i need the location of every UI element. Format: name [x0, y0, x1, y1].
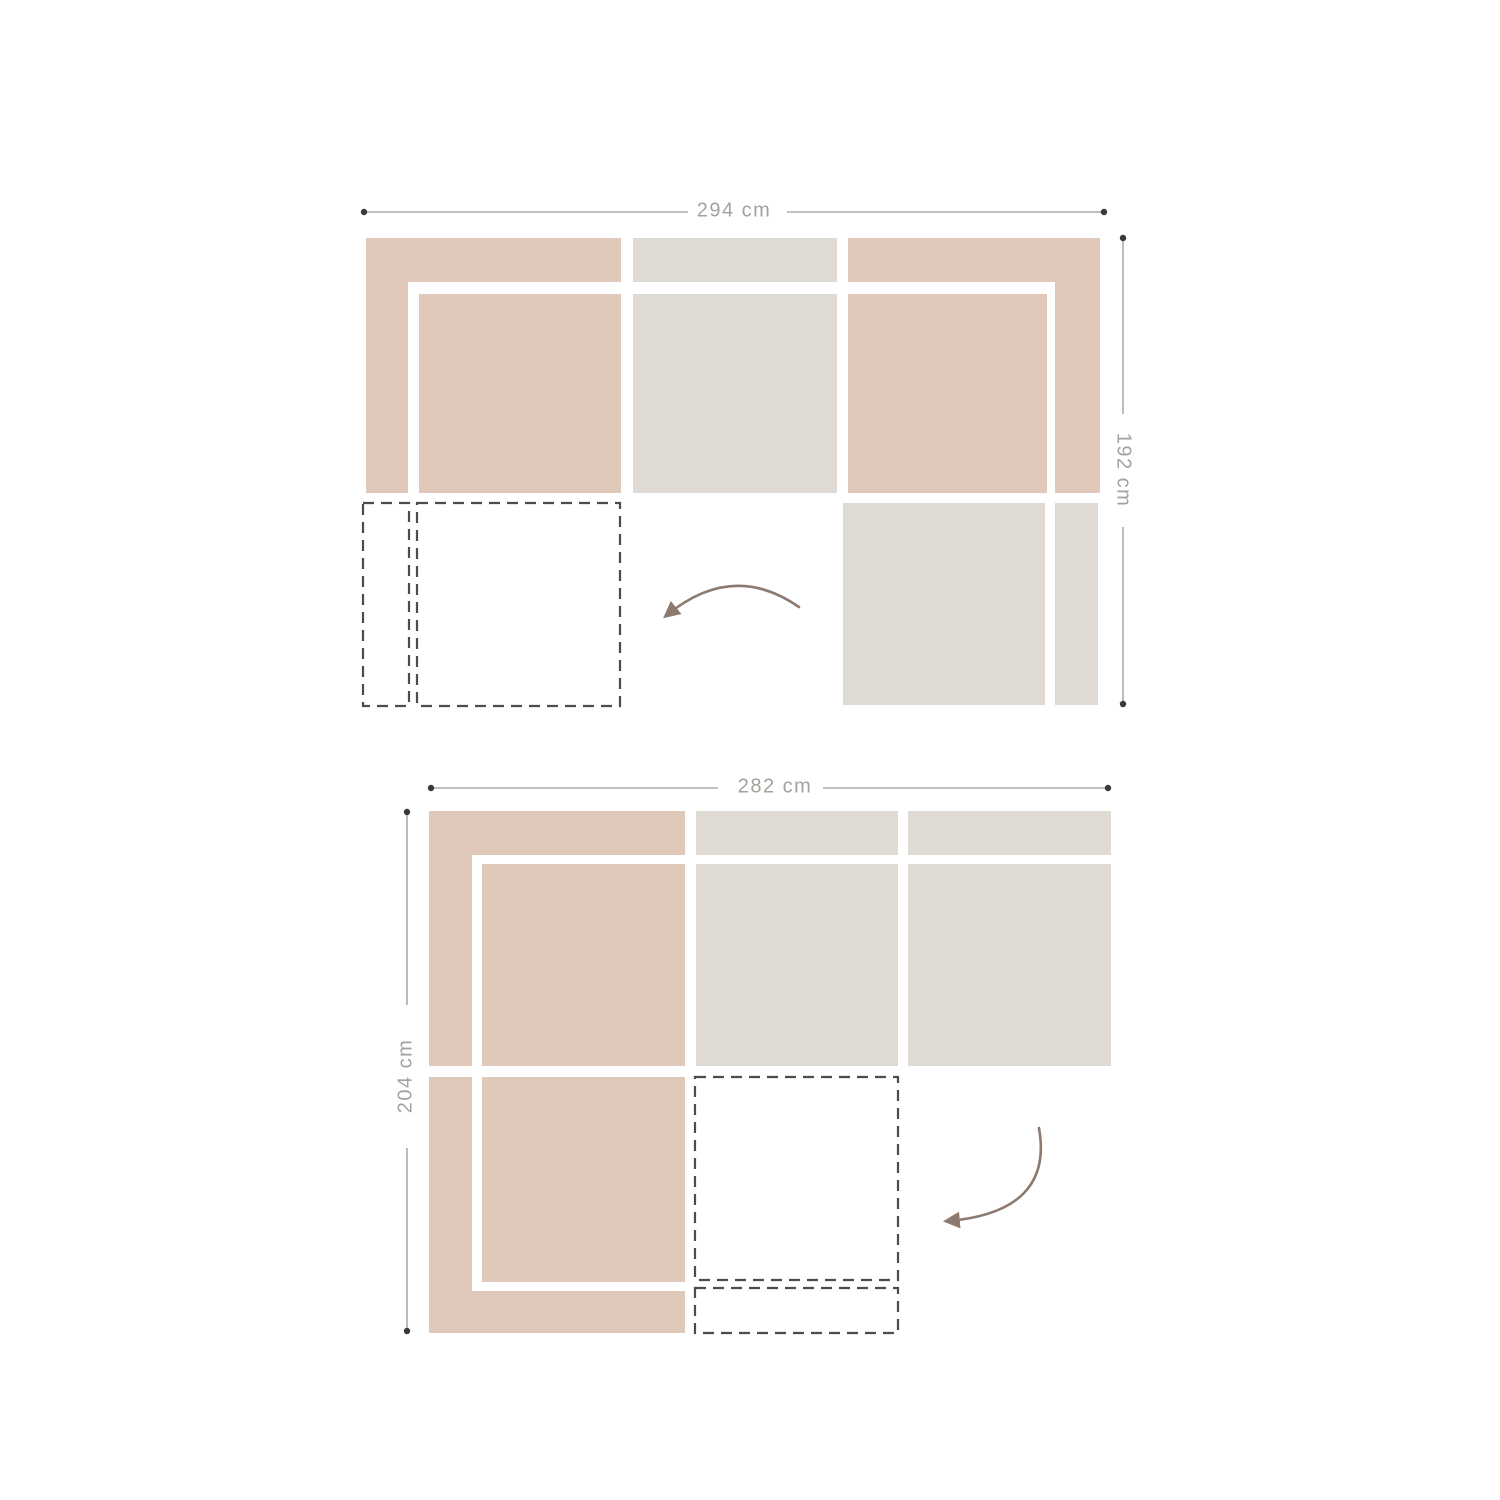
top-chaise-side-strip	[1055, 503, 1098, 705]
top-left-seat	[419, 294, 621, 493]
diagram-overlay	[0, 0, 1500, 1500]
sofa-dimension-diagrams: 294 cm 192 cm 282 cm 204 cm	[0, 0, 1500, 1500]
bottom-left-seat-lower	[482, 1077, 685, 1282]
bottom-ottoman-outline-seat	[695, 1077, 898, 1280]
top-ottoman-outline-armrest	[363, 503, 409, 706]
top-right-seat	[848, 294, 1047, 493]
bottom-left-seat-upper	[482, 864, 685, 1066]
top-height-label: 192 cm	[1112, 433, 1135, 508]
bottom-middle-backrest	[696, 811, 898, 855]
bottom-left-armrest-upper	[429, 811, 472, 1066]
curved-swap-arrow-down-left-icon	[948, 1128, 1041, 1221]
top-chaise-seat	[843, 503, 1045, 705]
bottom-height-label: 204 cm	[395, 1039, 418, 1114]
curved-swap-arrow-left-icon	[667, 586, 799, 615]
bottom-width-label: 282 cm	[738, 776, 813, 799]
bottom-right-seat	[908, 864, 1111, 1066]
top-width-label: 294 cm	[697, 200, 772, 223]
top-left-armrest	[366, 238, 408, 493]
top-middle-seat	[633, 294, 837, 493]
top-middle-backrest	[633, 238, 837, 282]
bottom-left-foot-strip	[429, 1291, 685, 1333]
bottom-middle-seat	[696, 864, 898, 1066]
bottom-right-backrest	[908, 811, 1111, 855]
bottom-ottoman-outline-footrest	[695, 1288, 898, 1333]
top-ottoman-outline-seat	[417, 503, 620, 706]
top-right-armrest	[1055, 238, 1100, 493]
